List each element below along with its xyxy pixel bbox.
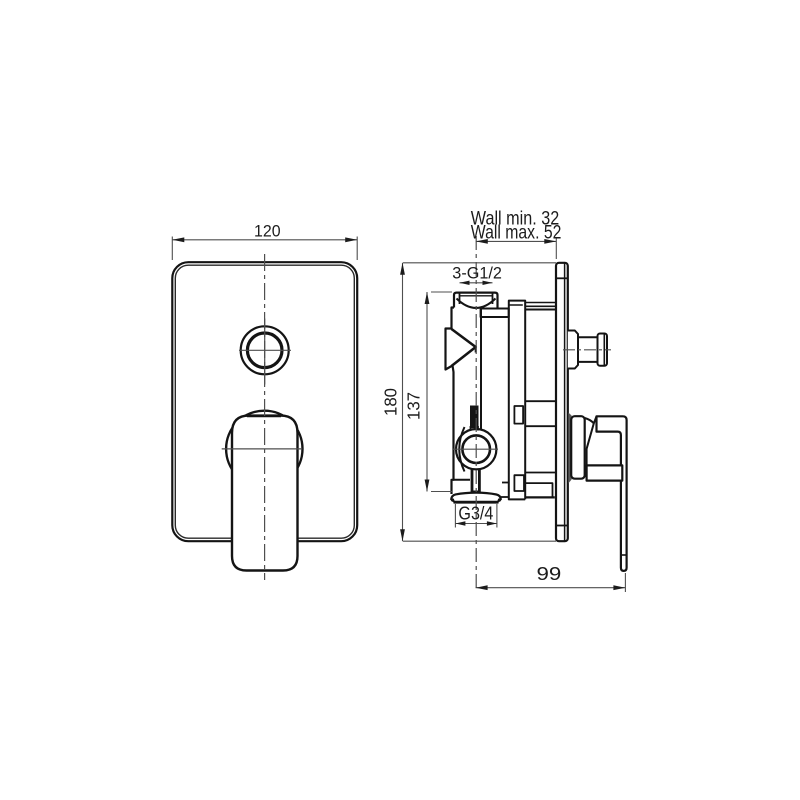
svg-text:99: 99	[537, 563, 562, 584]
svg-text:137: 137	[404, 392, 424, 420]
svg-text:Wall max. 52: Wall max. 52	[471, 222, 562, 244]
svg-text:120: 120	[254, 221, 281, 240]
svg-text:3-G1/2: 3-G1/2	[452, 265, 502, 283]
svg-text:180: 180	[381, 388, 401, 416]
svg-text:G3/4: G3/4	[458, 503, 493, 523]
